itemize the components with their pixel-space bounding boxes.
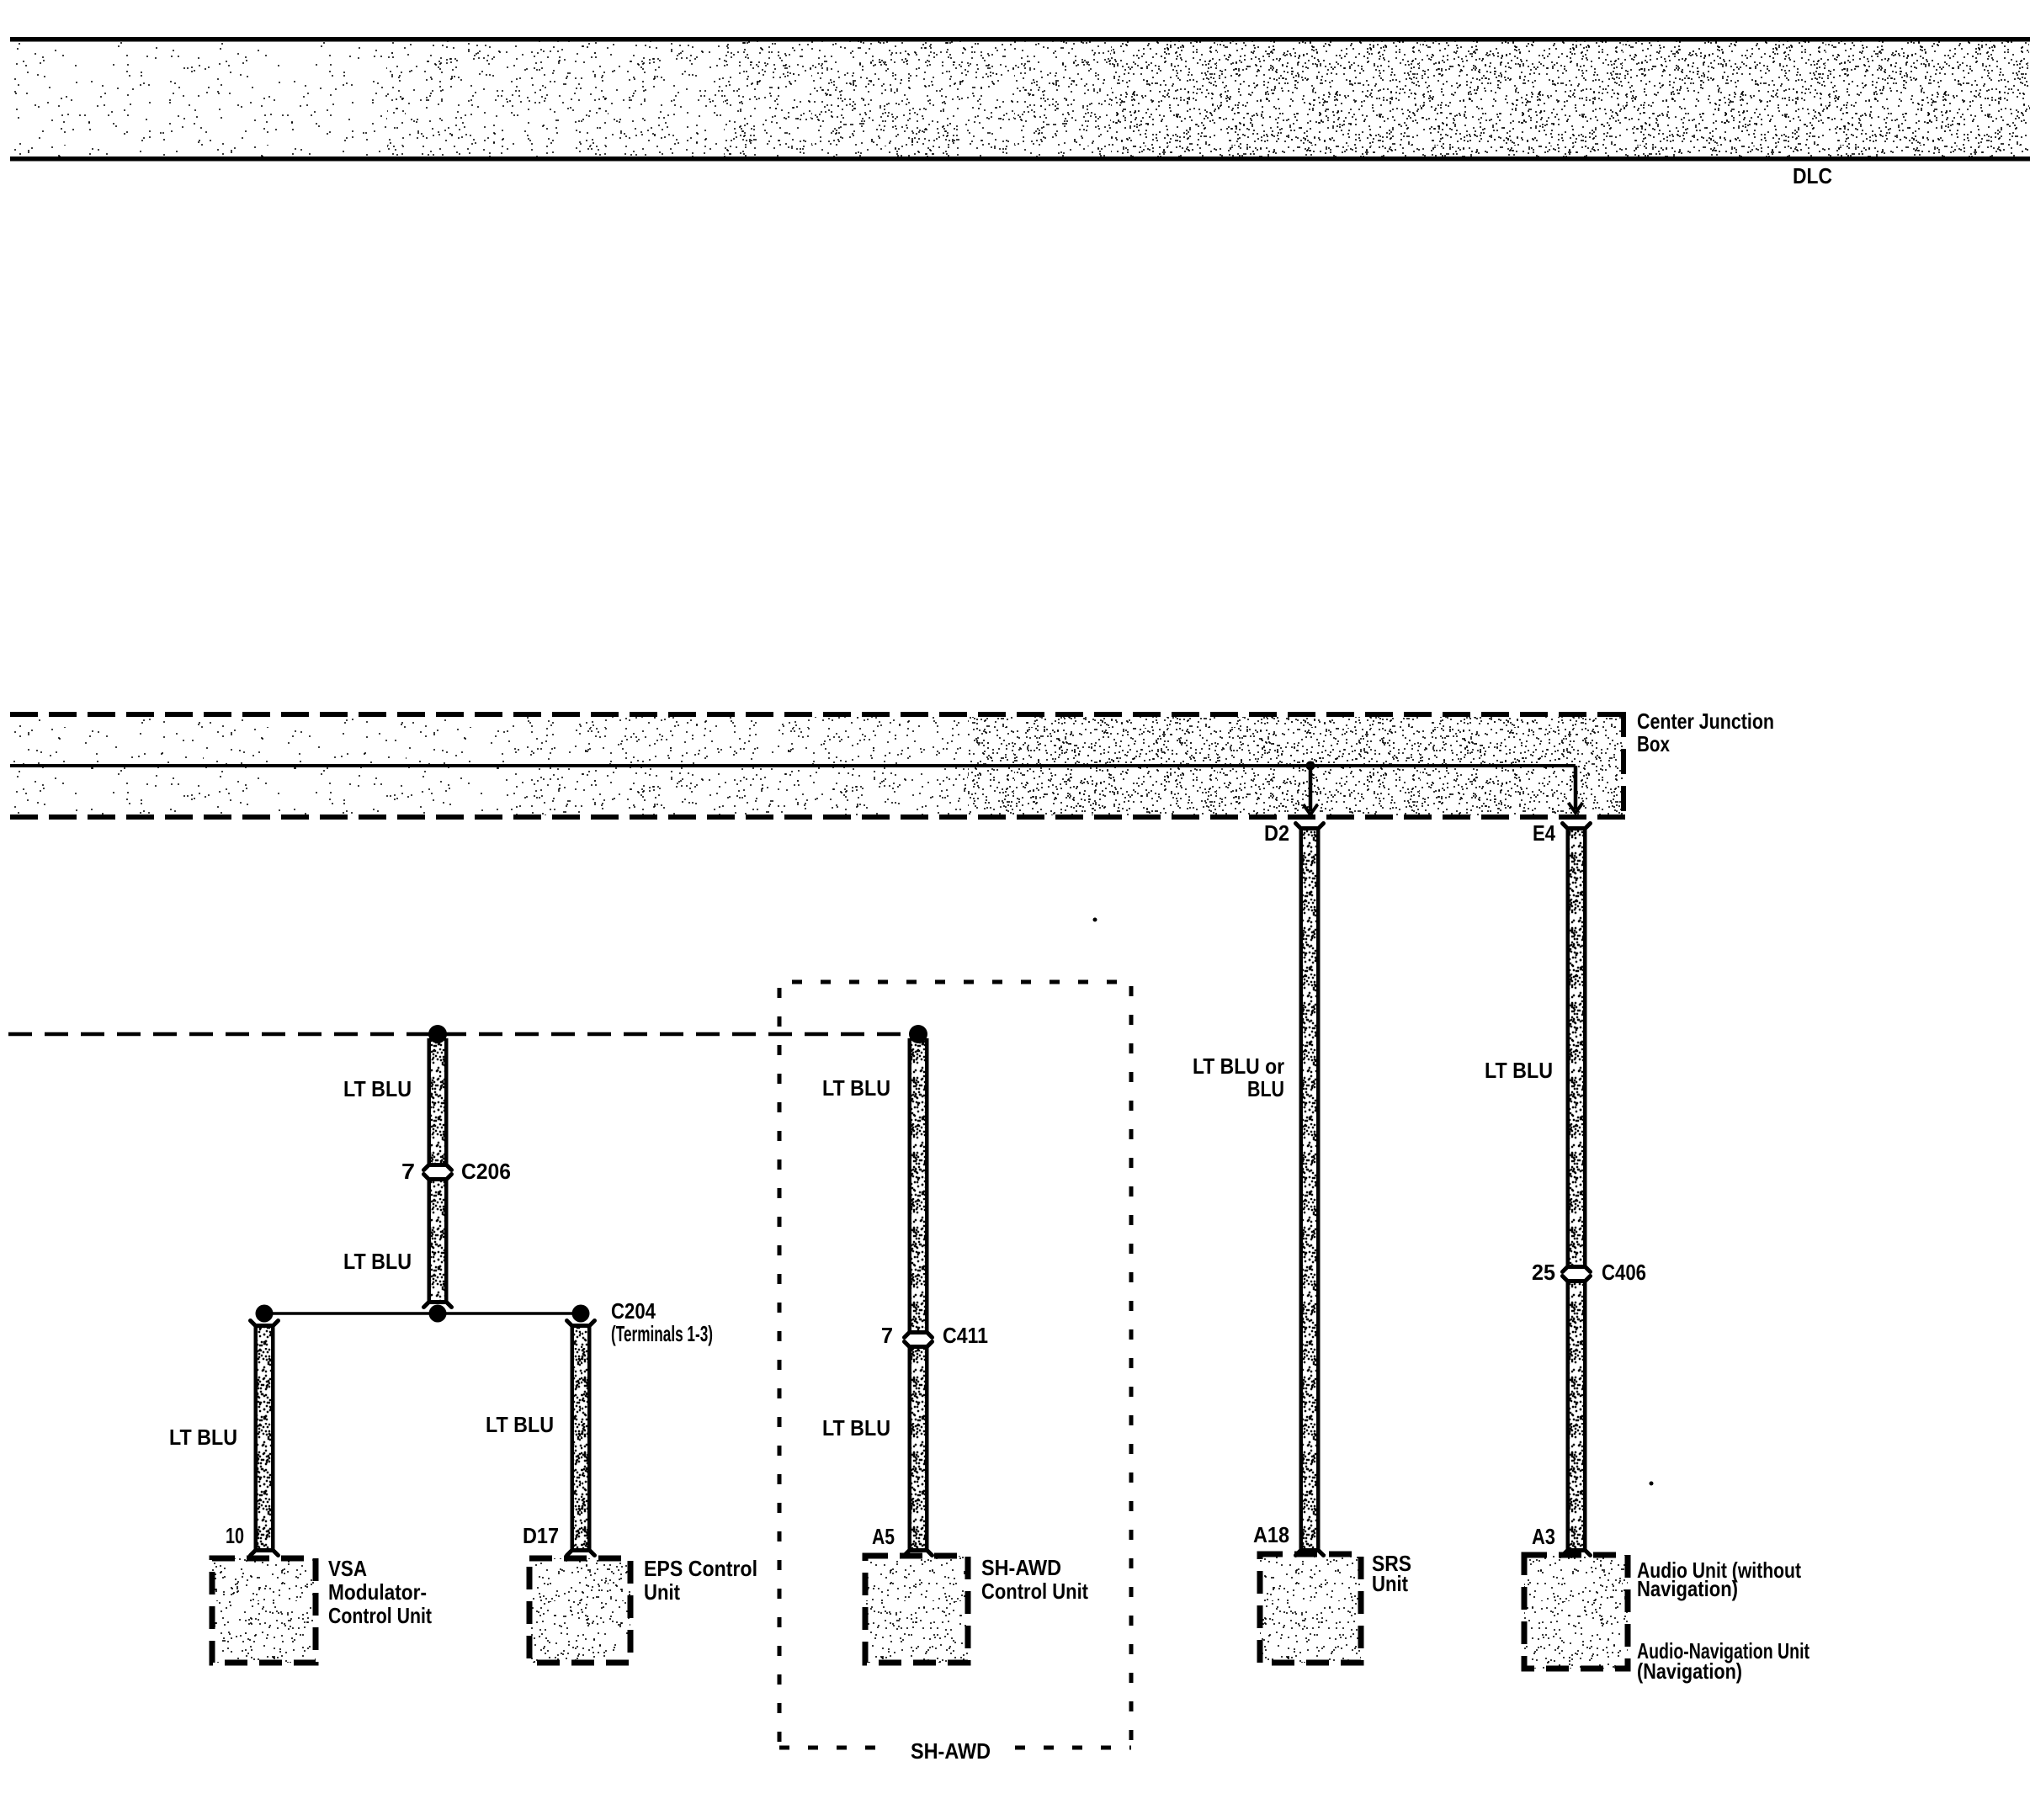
- svg-text:7: 7: [881, 1323, 893, 1348]
- svg-text:C204: C204: [611, 1298, 656, 1324]
- svg-text:Unit: Unit: [644, 1579, 680, 1605]
- svg-text:LT BLU: LT BLU: [343, 1076, 412, 1101]
- svg-text:C206: C206: [461, 1159, 511, 1184]
- svg-text:Unit: Unit: [1372, 1571, 1408, 1596]
- svg-text:LT BLU: LT BLU: [169, 1425, 237, 1450]
- svg-text:D17: D17: [523, 1523, 559, 1548]
- svg-text:A5: A5: [872, 1524, 895, 1549]
- svg-text:LT BLU: LT BLU: [343, 1249, 412, 1274]
- svg-text:LT BLU: LT BLU: [1485, 1058, 1553, 1083]
- svg-text:SH-AWD: SH-AWD: [981, 1555, 1061, 1580]
- svg-text:Modulator-: Modulator-: [328, 1579, 427, 1605]
- svg-text:Center Junction: Center Junction: [1637, 708, 1774, 734]
- svg-text:Control Unit: Control Unit: [981, 1579, 1088, 1604]
- svg-text:C411: C411: [943, 1323, 988, 1348]
- svg-text:LT BLU: LT BLU: [822, 1075, 890, 1101]
- svg-text:A3: A3: [1532, 1524, 1555, 1549]
- svg-text:C406: C406: [1602, 1260, 1646, 1285]
- svg-text:Control Unit: Control Unit: [328, 1603, 432, 1628]
- svg-text:LT BLU: LT BLU: [822, 1415, 890, 1441]
- svg-text:7: 7: [401, 1159, 415, 1184]
- svg-text:A18: A18: [1253, 1522, 1289, 1547]
- svg-text:BLU: BLU: [1247, 1076, 1284, 1101]
- svg-text:10: 10: [226, 1523, 244, 1548]
- svg-text:LT BLU or: LT BLU or: [1193, 1053, 1284, 1079]
- svg-text:EPS Control: EPS Control: [644, 1556, 757, 1581]
- svg-text:DLC: DLC: [1793, 163, 1832, 188]
- svg-text:LT BLU: LT BLU: [486, 1412, 554, 1437]
- svg-text:(Navigation): (Navigation): [1637, 1658, 1742, 1684]
- svg-text:VSA: VSA: [328, 1556, 367, 1581]
- svg-text:(Terminals 1-3): (Terminals 1-3): [611, 1321, 713, 1346]
- svg-text:SH-AWD: SH-AWD: [911, 1738, 991, 1764]
- svg-text:Box: Box: [1637, 731, 1670, 756]
- svg-text:Navigation): Navigation): [1637, 1576, 1738, 1601]
- svg-text:D2: D2: [1264, 820, 1289, 846]
- svg-text:25: 25: [1532, 1260, 1555, 1285]
- svg-text:E4: E4: [1533, 820, 1555, 846]
